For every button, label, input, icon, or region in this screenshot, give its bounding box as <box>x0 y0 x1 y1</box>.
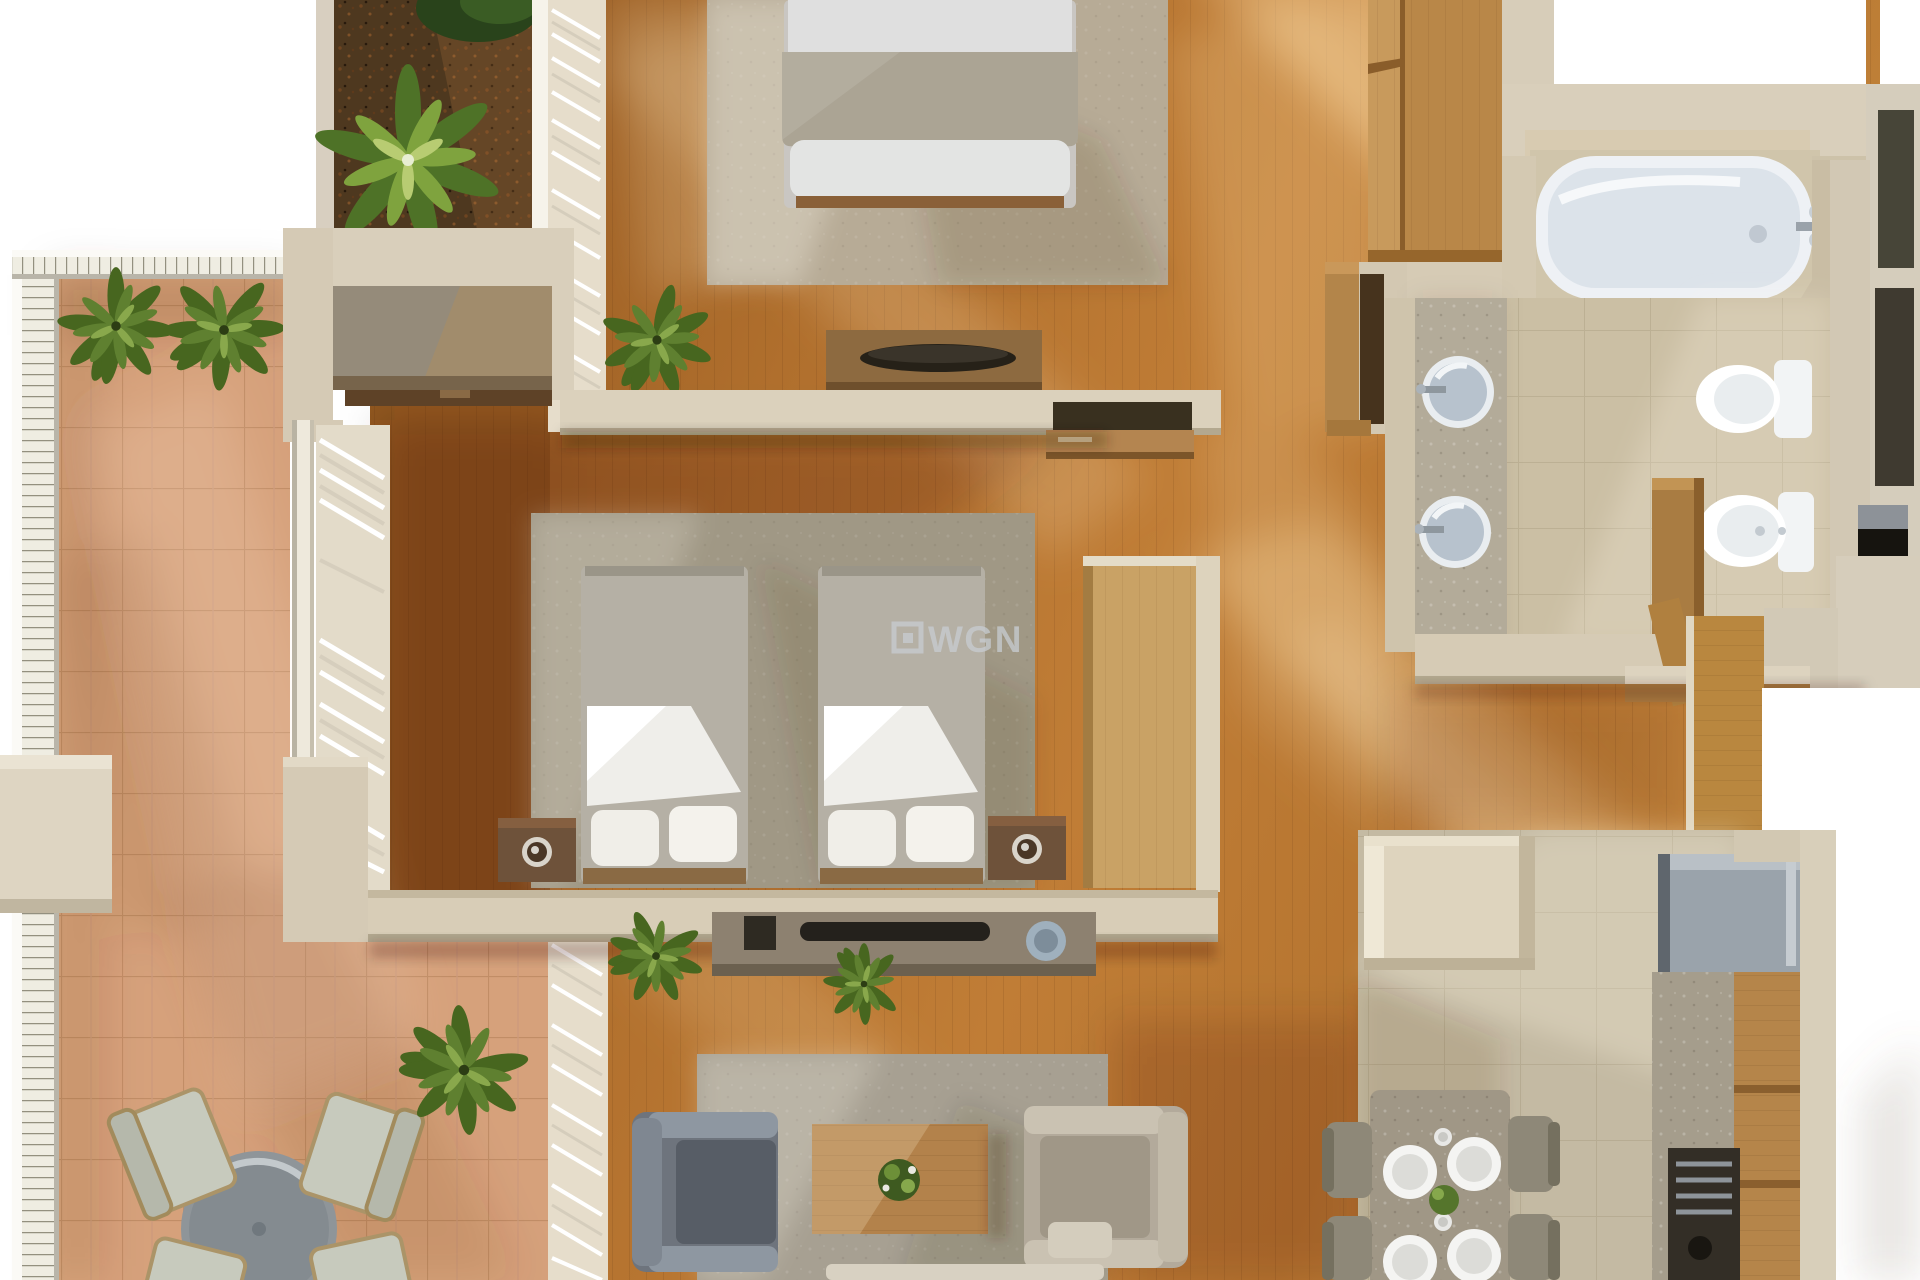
svg-text:WGN: WGN <box>928 619 1023 660</box>
